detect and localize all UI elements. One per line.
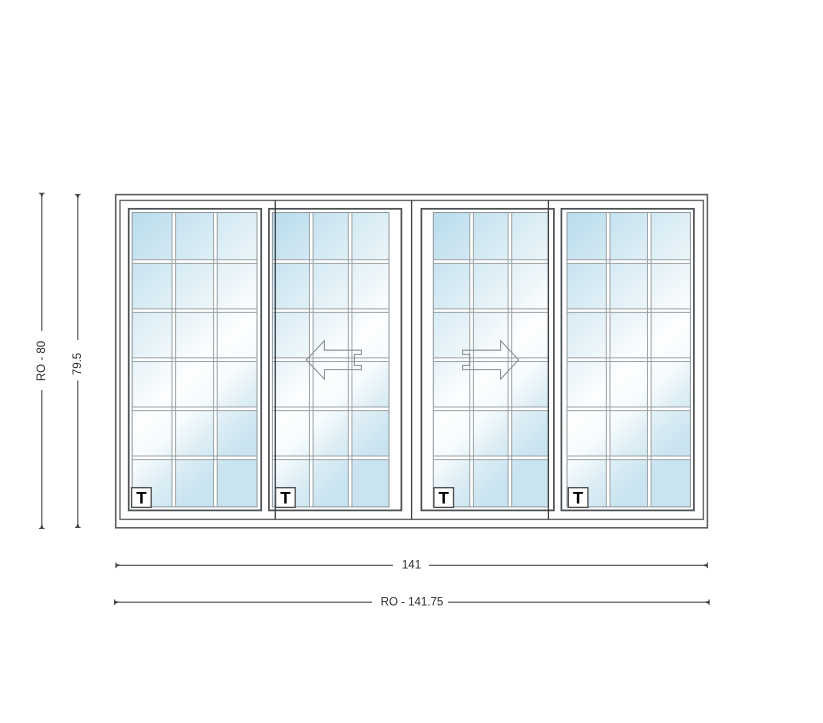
svg-text:141: 141	[402, 560, 421, 572]
svg-text:T: T	[439, 488, 450, 507]
svg-text:T: T	[573, 488, 584, 507]
svg-text:T: T	[280, 488, 291, 507]
svg-text:RO - 141.75: RO - 141.75	[381, 596, 444, 608]
svg-text:RO - 80: RO - 80	[36, 341, 48, 381]
svg-text:79.5: 79.5	[72, 353, 84, 375]
svg-text:T: T	[136, 488, 147, 507]
